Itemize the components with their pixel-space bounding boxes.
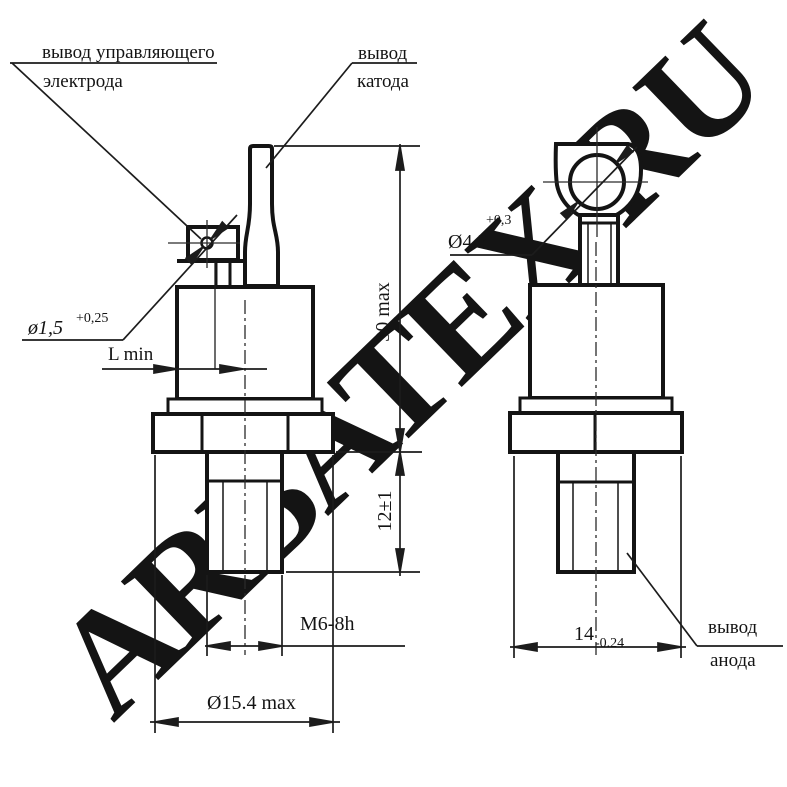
gate-lead-length: L min <box>108 344 154 365</box>
thread-designation: M6-8h <box>300 613 354 635</box>
gate-label-line1: вывод управляющего <box>42 42 215 63</box>
hex-across-flats: 14 <box>574 623 594 645</box>
arrowhead <box>396 549 404 572</box>
drawing-canvas: ARBATEX.RU <box>0 0 787 787</box>
lug-hole-diameter: Ø4.3 <box>448 231 487 253</box>
arrowhead <box>514 643 537 651</box>
cathode-label-leader <box>266 63 352 168</box>
gate-hole-diameter: ø1,5 <box>27 317 63 339</box>
stud-length: 12±1 <box>374 491 396 532</box>
gate-hole-tolerance: +0,25 <box>76 311 108 326</box>
arrowhead <box>396 146 404 170</box>
watermark: ARBATEX.RU <box>22 0 787 747</box>
arrowhead <box>310 718 333 726</box>
cathode-label-line1: вывод <box>358 43 408 64</box>
anode-label-leader <box>627 553 697 646</box>
lug-strap <box>580 215 618 287</box>
watermark-text: ARBATEX.RU <box>22 0 787 747</box>
hex-tolerance: -0.24 <box>595 636 624 651</box>
overall-height: 30 max <box>372 282 394 341</box>
cathode-lead <box>245 146 278 286</box>
arrowhead <box>154 365 177 373</box>
anode-label-line2: анода <box>710 650 756 671</box>
body-diameter: Ø15.4 max <box>207 692 296 714</box>
gate-label-line2: электрода <box>43 71 123 92</box>
technical-drawing-page: ARBATEX.RU <box>0 0 787 787</box>
arrowhead <box>259 642 282 650</box>
lug-hole-tolerance: +0,3 <box>486 213 511 228</box>
hex-nut <box>153 414 333 452</box>
arrowhead <box>658 643 681 651</box>
anode-label-line1: вывод <box>708 617 758 638</box>
cathode-label-line2: катода <box>357 71 410 92</box>
